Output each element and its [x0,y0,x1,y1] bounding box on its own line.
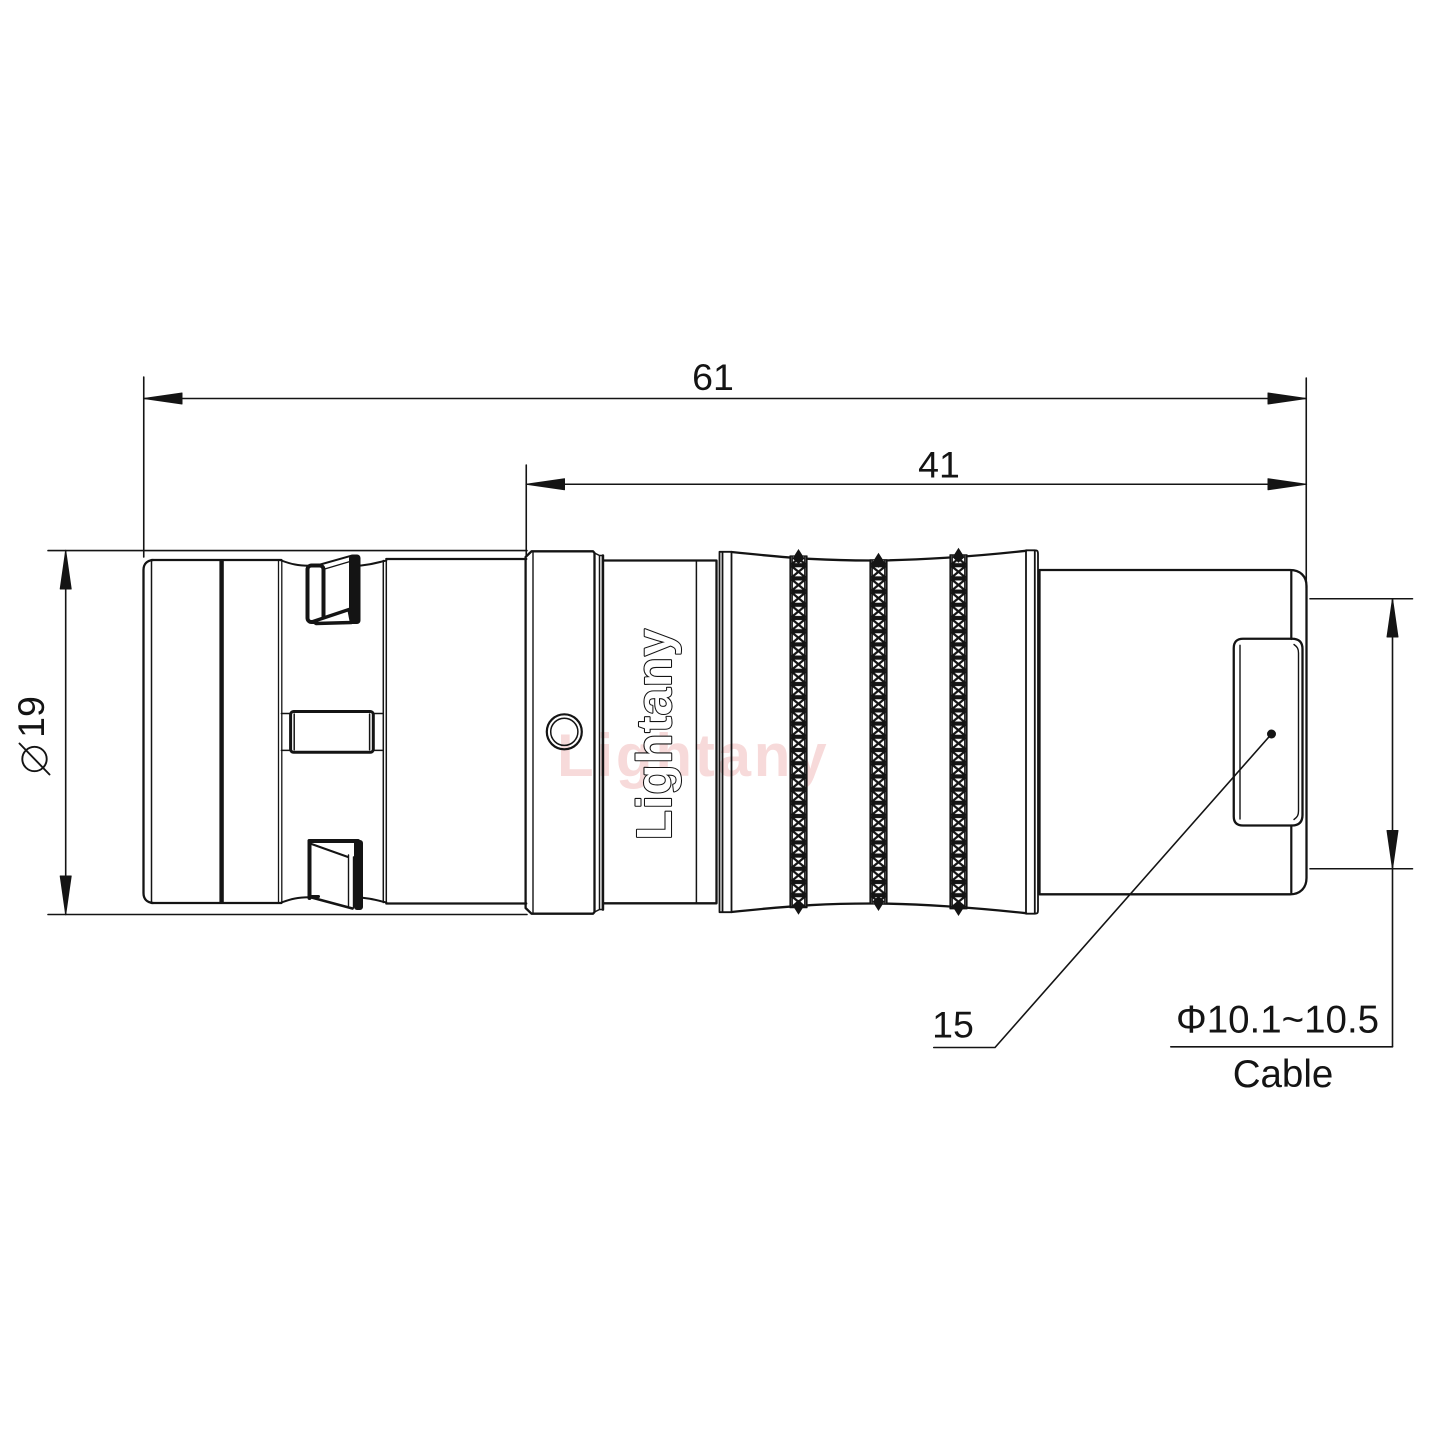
svg-text:Φ10.1~10.5: Φ10.1~10.5 [1176,999,1379,1042]
svg-text:41: 41 [918,444,960,486]
svg-text:61: 61 [692,356,734,398]
svg-text:Cable: Cable [1233,1053,1334,1096]
svg-text:Lightany: Lightany [628,628,682,840]
svg-text:19: 19 [10,696,52,738]
svg-text:15: 15 [932,1004,974,1046]
svg-text:Lightany: Lightany [557,722,829,789]
